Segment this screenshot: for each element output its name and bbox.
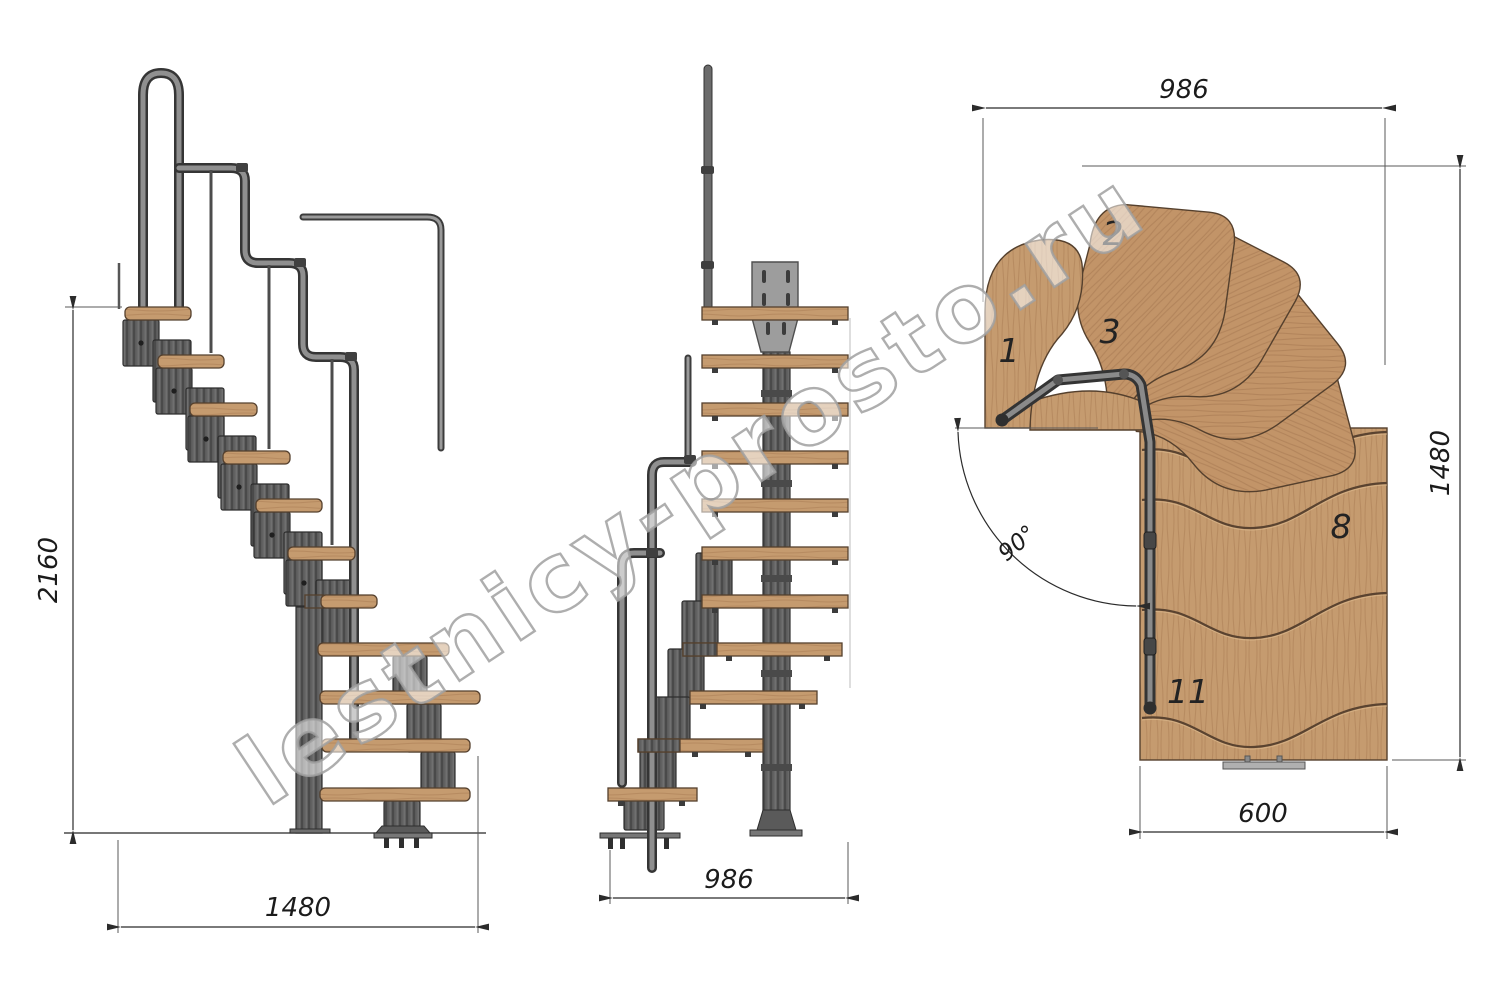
tread bbox=[125, 307, 191, 320]
tread-dark-edge bbox=[683, 643, 717, 656]
dimension-label: 986 bbox=[704, 865, 754, 895]
tread bbox=[223, 451, 290, 464]
step-number-label: 11 bbox=[1167, 672, 1209, 711]
tread bbox=[702, 547, 848, 560]
base-plate bbox=[374, 833, 432, 838]
tread bbox=[321, 595, 377, 608]
base-plate bbox=[750, 830, 802, 836]
dimension-label: 600 bbox=[1238, 799, 1288, 829]
dim-plan-600: 600 bbox=[1140, 766, 1387, 839]
dim-height-2160: 2160 bbox=[34, 307, 122, 830]
tread bbox=[702, 307, 848, 320]
step-number-label: 8 bbox=[1331, 507, 1352, 546]
plan-view: 1 2 3 8 11 986 1480 600 90° bbox=[955, 75, 1466, 839]
far-handrail bbox=[303, 217, 441, 448]
tread bbox=[158, 355, 224, 368]
column-base-flare bbox=[376, 826, 430, 833]
step-number-label: 3 bbox=[1100, 312, 1121, 351]
tread-dark-edge bbox=[638, 739, 680, 752]
tread bbox=[690, 691, 817, 704]
dimension-label: 1480 bbox=[1426, 430, 1456, 496]
tread bbox=[320, 788, 470, 801]
technical-drawing-page: 2160 1480 bbox=[0, 0, 1500, 987]
corner-filler bbox=[1030, 391, 1143, 430]
dimension-label: 1480 bbox=[265, 893, 331, 923]
tread-dark-edge bbox=[305, 595, 323, 608]
tread bbox=[256, 499, 322, 512]
tread bbox=[608, 788, 697, 801]
dimension-label: 986 bbox=[1159, 75, 1209, 105]
tread bbox=[702, 595, 848, 608]
column-base-flare bbox=[757, 810, 796, 830]
watermark-text: lestnicy-prosto.ru bbox=[219, 149, 1166, 827]
dim-front-986: 986 bbox=[610, 842, 848, 904]
front-top-post bbox=[701, 65, 714, 311]
dimension-label: 90° bbox=[994, 521, 1042, 567]
side-elevation-view: 2160 1480 bbox=[34, 73, 486, 933]
base-plate bbox=[600, 833, 680, 838]
tread bbox=[190, 403, 257, 416]
tread bbox=[288, 547, 355, 560]
dim-angle-90: 90° bbox=[955, 428, 1136, 606]
staircase-drawing-canvas: 2160 1480 bbox=[0, 0, 1500, 987]
dimension-label: 2160 bbox=[34, 537, 64, 603]
